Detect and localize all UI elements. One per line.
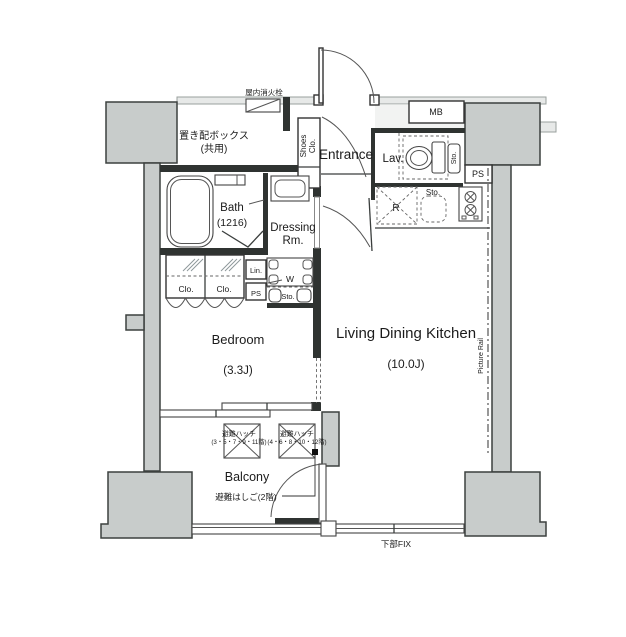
escape-hatch-a-label-1: 避難ハッチ xyxy=(222,429,256,438)
entrance-label: Entrance xyxy=(319,147,373,162)
pipe-space-label: PS xyxy=(472,169,484,179)
dressing-label-1: Dressing xyxy=(270,222,315,234)
escape-hatch-a-label-2: (3・5・7・9・11階) xyxy=(211,438,266,446)
toilet-bowl xyxy=(406,147,432,170)
utility-storage-label: Sto. xyxy=(281,292,294,301)
ldk-size-label: (10.0J) xyxy=(387,357,424,371)
wall-right xyxy=(492,165,511,472)
meter-box-label: MB xyxy=(429,107,443,117)
floorplan-svg: 屋内消火栓 置き配ボックス (共用) Shoes Clo. Entrance L… xyxy=(0,0,626,637)
bedroom-sliding-door xyxy=(317,358,321,403)
bathtub xyxy=(167,176,213,247)
kitchen-storage xyxy=(421,196,446,222)
parcel-box-label-1: 置き配ボックス xyxy=(179,130,249,142)
washer-label: W xyxy=(286,274,294,284)
closet-folding-doors xyxy=(166,298,244,308)
parcel-box-label-2: (共用) xyxy=(201,143,228,155)
bath-size-label: (1216) xyxy=(217,217,247,229)
shoes-closet-label-2: Clo. xyxy=(308,139,317,153)
balcony-door-leaf xyxy=(319,464,326,523)
escape-ladder-label: 避難はしご(2階) xyxy=(215,492,277,502)
column-bottom-left xyxy=(101,472,192,538)
balcony-door-swing xyxy=(271,464,324,517)
ladder-leader-line xyxy=(282,453,315,496)
toilet-tank xyxy=(432,142,445,173)
refrigerator-label: R xyxy=(392,203,399,214)
shoes-closet-label-1: Shoes xyxy=(299,135,308,158)
column-bottom-right xyxy=(465,472,546,536)
bath-counter xyxy=(215,175,245,185)
closet-right-label: Clo. xyxy=(216,284,231,294)
balcony-rail xyxy=(192,524,322,534)
front-door-swing-outer xyxy=(321,50,374,103)
bath-folding-door xyxy=(222,231,263,247)
front-door-leaf xyxy=(319,48,323,103)
dressing-label-2: Rm. xyxy=(282,235,303,247)
kitchen-storage-label: Sto. xyxy=(426,188,440,197)
ldk-door xyxy=(323,198,372,251)
lavatory-label: Lav. xyxy=(383,153,404,165)
bath-label: Bath xyxy=(220,202,244,214)
floorplan-page: 屋内消火栓 置き配ボックス (共用) Shoes Clo. Entrance L… xyxy=(0,0,626,637)
picture-rail-label: Picture Rail xyxy=(478,338,485,374)
balcony-door-threshold xyxy=(275,518,323,524)
bedroom-closets xyxy=(166,255,244,308)
closet-left-label: Clo. xyxy=(178,284,193,294)
escape-hatch-b-label-2: (4・6・8・10・12階) xyxy=(267,438,326,446)
ladder-marker-dot xyxy=(312,449,318,455)
bedroom-label: Bedroom xyxy=(212,332,265,347)
balcony-label: Balcony xyxy=(225,470,270,484)
linen-label: Lin. xyxy=(250,266,262,275)
ps-utility-label: PS xyxy=(251,289,261,298)
column-top-left xyxy=(106,102,177,163)
ldk-label: Living Dining Kitchen xyxy=(336,325,476,342)
escape-hatch-b-label-1: 避難ハッチ xyxy=(280,429,314,438)
fire-hydrant-label: 屋内消火栓 xyxy=(245,87,283,97)
wall-left xyxy=(144,163,160,471)
fixed-window-label: 下部FIX xyxy=(381,539,412,549)
bedroom-size-label: (3.3J) xyxy=(223,365,253,377)
bedroom-window xyxy=(160,403,312,417)
ldk-fixed-window xyxy=(321,521,464,536)
column-top-right xyxy=(465,103,540,165)
lav-storage-label: Sto. xyxy=(451,152,458,165)
wall-left-tab xyxy=(126,315,144,330)
parcel-box-area xyxy=(246,99,280,112)
